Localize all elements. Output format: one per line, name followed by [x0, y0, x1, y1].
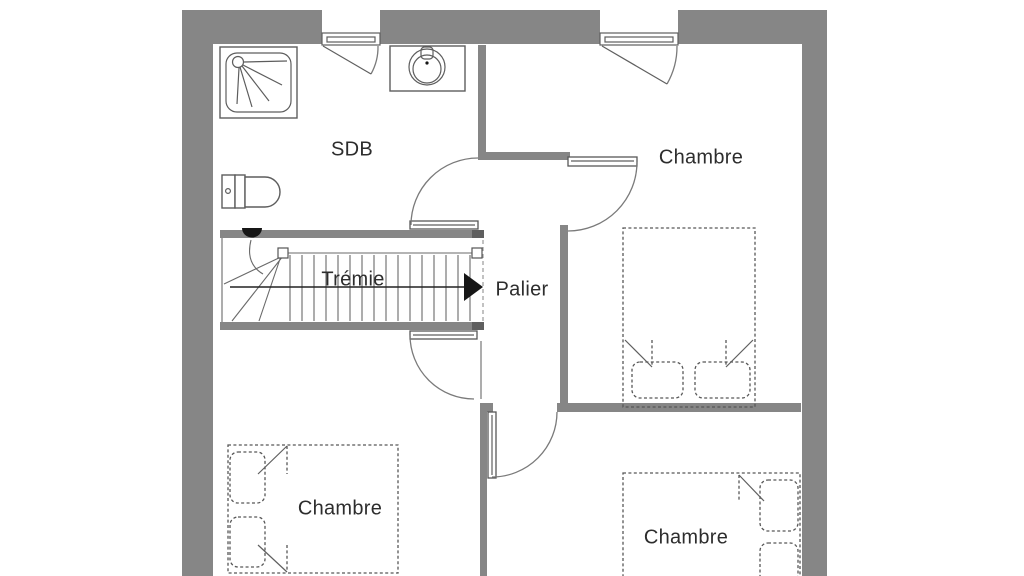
room-label-chambre-top-right: Chambre [659, 147, 743, 170]
stair-post-right [472, 248, 482, 258]
stair-post-left [278, 248, 288, 258]
bed-chambre-top-right-icon [623, 228, 755, 407]
sink-icon [390, 46, 465, 91]
door-chambre-bottom-right-icon [488, 412, 557, 478]
wall-left [182, 10, 213, 576]
bathroom-fixtures [220, 46, 465, 208]
floor-plan: SDB Chambre Trémie Palier Chambre Chambr… [0, 0, 1024, 576]
toilet-icon [222, 175, 280, 208]
wall-mid-horizontal [557, 403, 801, 412]
room-label-chambre-bottom-left: Chambre [298, 498, 382, 521]
wall-bottom-divider [480, 403, 487, 576]
wall-tremie-bottom-cap [472, 322, 484, 330]
bed-chambre-bottom-right-icon [623, 473, 800, 576]
room-label-palier: Palier [496, 279, 549, 302]
door-chambre-bottom-left-icon [410, 331, 477, 399]
wall-sdb-palier [478, 152, 570, 160]
stair-arrow-head [464, 273, 483, 301]
shower-icon [220, 47, 297, 118]
room-label-sdb: SDB [331, 139, 373, 162]
door-chambre-top-right-icon [568, 157, 637, 231]
door-sdb-icon [410, 158, 478, 229]
window-sdb-icon [322, 33, 380, 74]
wall-right [802, 44, 827, 576]
wall-sdb-chambre-divider [478, 45, 486, 160]
wall-top-middle [380, 10, 600, 44]
window-chambre-icon [600, 33, 678, 84]
doors [410, 157, 637, 478]
wall-top-right [678, 10, 827, 44]
room-label-chambre-bottom-right: Chambre [644, 527, 728, 550]
room-label-tremie: Trémie [321, 269, 384, 292]
wall-tremie-bottom [220, 322, 484, 330]
wall-tremie-top-cap [472, 230, 484, 238]
wall-palier-right [560, 225, 568, 412]
